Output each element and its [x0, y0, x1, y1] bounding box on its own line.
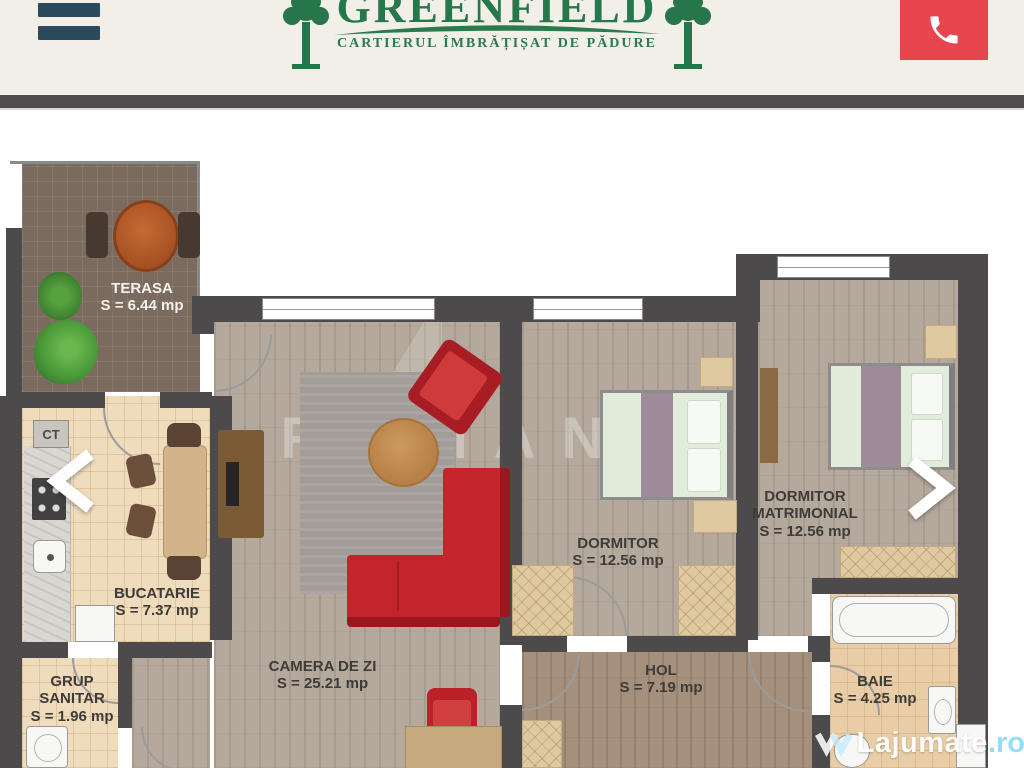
terrace-edge [10, 161, 200, 164]
site-name: Lajumate [857, 727, 988, 760]
room-name: GRUP SANITAR [22, 673, 122, 708]
desk [405, 726, 502, 768]
wardrobe [678, 565, 736, 636]
dresser [760, 368, 778, 463]
menu-button[interactable] [38, 0, 100, 42]
window [533, 298, 643, 320]
room-area: S = 7.37 mp [82, 602, 232, 619]
coffee-table [368, 418, 439, 487]
listing-page: GREENFIELD CARTIERUL ÎMBRĂȚIȘAT DE PĂDUR… [0, 0, 1024, 768]
terrace-chair [178, 212, 200, 258]
wall [500, 705, 522, 768]
window [262, 298, 435, 320]
kitchen-sink [33, 540, 66, 573]
wardrobe [840, 546, 956, 578]
phone-icon [926, 12, 962, 48]
wall [0, 396, 22, 768]
tv [226, 462, 239, 506]
tree-icon [280, 0, 332, 76]
sofa [443, 468, 510, 617]
chevron-left-icon [44, 448, 102, 514]
wall [160, 392, 212, 408]
dining-chair [167, 423, 201, 447]
nightstand [693, 500, 737, 533]
nightstand [925, 325, 957, 359]
chevron-right-icon [900, 455, 958, 521]
room-area: S = 4.25 mp [813, 690, 937, 707]
terrace-table [113, 200, 179, 272]
window [777, 256, 890, 278]
bathtub [832, 596, 956, 644]
hall-cabinet [522, 720, 562, 768]
room-label-dormitor: DORMITOR S = 12.56 mp [548, 535, 688, 570]
room-area: S = 12.56 mp [548, 552, 688, 569]
wall [812, 578, 988, 594]
room-area: S = 6.44 mp [72, 297, 212, 314]
lajumate-logo-icon [815, 723, 853, 763]
room-name: BUCATARIE [82, 585, 232, 602]
dining-table [163, 445, 207, 559]
wall [6, 228, 22, 396]
room-label-camera-de-zi: CAMERA DE ZI S = 25.21 mp [240, 658, 405, 693]
wall [736, 322, 758, 640]
wall [627, 636, 748, 652]
section-divider [0, 95, 1024, 108]
nightstand [700, 357, 733, 387]
boiler-label: CT [33, 420, 69, 448]
room-name: CAMERA DE ZI [240, 658, 405, 675]
wall [0, 642, 68, 658]
room-area: S = 1.96 mp [22, 708, 122, 725]
room-name: TERASA [72, 280, 212, 297]
room-label-bucatarie: BUCATARIE S = 7.37 mp [82, 585, 232, 620]
site-watermark: Lajumate.ro [815, 720, 1024, 766]
wardrobe [512, 565, 574, 636]
tree-icon [662, 0, 714, 76]
room-label-baie: BAIE S = 4.25 mp [813, 673, 937, 708]
tv-stand [218, 430, 264, 538]
app-header: GREENFIELD CARTIERUL ÎMBRĂȚIȘAT DE PĂDUR… [0, 0, 1024, 95]
logo-tagline: CARTIERUL ÎMBRĂȚIȘAT DE PĂDURE [332, 36, 662, 52]
bed [828, 363, 955, 470]
room-name: BAIE [813, 673, 937, 690]
call-button[interactable] [900, 0, 988, 60]
room-label-terasa: TERASA S = 6.44 mp [72, 280, 212, 315]
room-name: DORMITOR MATRIMONIAL [739, 488, 871, 523]
terrace-chair [86, 212, 108, 258]
room-area: S = 12.56 mp [739, 523, 871, 540]
room-label-grup-sanitar: GRUP SANITAR S = 1.96 mp [22, 673, 122, 725]
dining-chair [167, 556, 201, 580]
room-name: HOL [597, 662, 725, 679]
room-area: S = 25.21 mp [240, 675, 405, 692]
hamburger-icon [38, 3, 100, 17]
next-image-arrow[interactable] [900, 455, 958, 526]
hamburger-icon [38, 26, 100, 40]
wc-sink [26, 726, 68, 768]
wall [522, 636, 567, 652]
prev-image-arrow[interactable] [44, 448, 102, 519]
room-label-dormitor-matrimonial: DORMITOR MATRIMONIAL S = 12.56 mp [739, 488, 871, 540]
floorplan-image[interactable]: ROMANIA [0, 110, 1024, 768]
greenfield-logo[interactable]: GREENFIELD CARTIERUL ÎMBRĂȚIȘAT DE PĂDUR… [272, 0, 722, 78]
wall [6, 392, 105, 408]
site-tld: .ro [988, 727, 1024, 760]
wall [118, 642, 212, 658]
room-label-hol: HOL S = 7.19 mp [597, 662, 725, 697]
room-name: DORMITOR [548, 535, 688, 552]
room-area: S = 7.19 mp [597, 679, 725, 696]
bed [600, 390, 733, 500]
logo-title: GREENFIELD [332, 0, 662, 28]
wall [192, 322, 214, 334]
wall [958, 254, 988, 768]
master-bedroom-floor [758, 578, 812, 636]
wall [812, 636, 830, 662]
